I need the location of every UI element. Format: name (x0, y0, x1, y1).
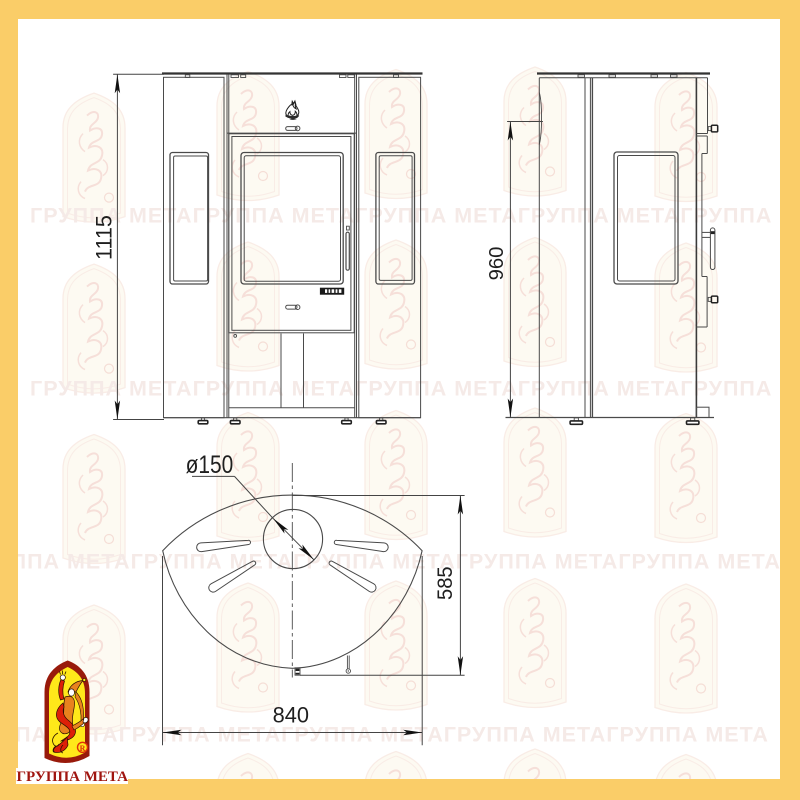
svg-text:ГРУППА МЕТА: ГРУППА МЕТА (17, 769, 129, 785)
svg-text:840: 840 (273, 703, 309, 728)
svg-text:ГРУППА МЕТАГРУППА МЕТАГРУППА М: ГРУППА МЕТАГРУППА МЕТАГРУППА МЕТАГРУППА … (30, 377, 800, 401)
svg-text:1115: 1115 (92, 215, 117, 260)
svg-text:585: 585 (433, 566, 457, 600)
svg-text:ГРУППА МЕТАГРУППА МЕТАГРУППА М: ГРУППА МЕТАГРУППА МЕТАГРУППА МЕТАГРУППА … (0, 723, 769, 747)
svg-text:ГРУППА МЕТАГРУППА МЕТАГРУППА М: ГРУППА МЕТАГРУППА МЕТАГРУППА МЕТАГРУППА … (0, 550, 781, 574)
svg-text:960: 960 (486, 247, 508, 281)
svg-text:R: R (80, 744, 86, 753)
svg-text:ø150: ø150 (186, 451, 234, 479)
